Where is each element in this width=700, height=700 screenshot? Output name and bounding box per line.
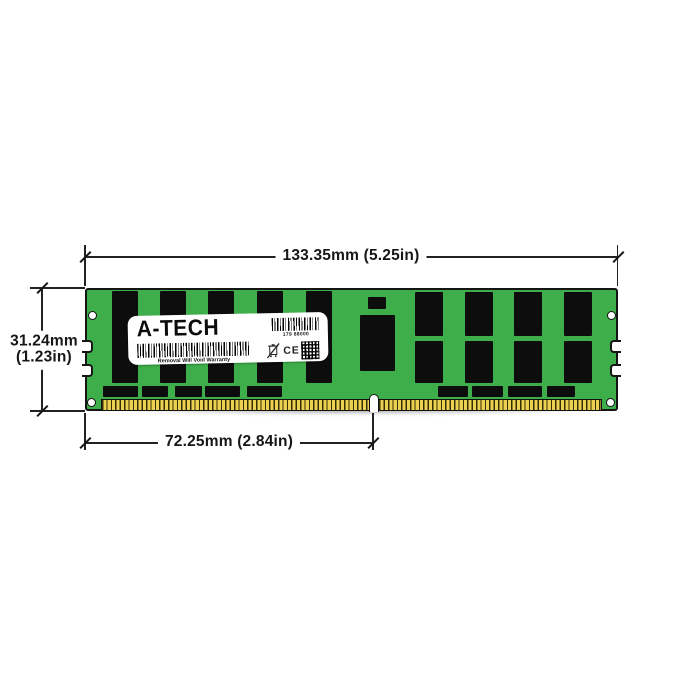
ce-mark: CE <box>283 344 300 356</box>
serial-number: 179 88000 <box>272 331 320 338</box>
barcode-icon <box>272 317 320 331</box>
small-chip <box>142 386 168 397</box>
small-chip <box>103 386 138 397</box>
small-chip <box>247 386 282 397</box>
small-chip <box>472 386 503 397</box>
extension-line <box>617 245 619 286</box>
edge-notch <box>82 364 93 377</box>
product-label: A-TECH 179 88000 Removal Will Void Warra… <box>128 312 329 365</box>
pin-key-notch <box>369 394 379 412</box>
edge-notch <box>610 340 621 353</box>
dimension-height-in: (1.23in) <box>10 350 78 366</box>
edge-notch <box>82 340 93 353</box>
small-chip <box>438 386 468 397</box>
memory-chip <box>514 341 542 383</box>
spd-chip <box>368 297 386 309</box>
gold-pin-contacts <box>101 399 602 411</box>
memory-chip <box>415 341 443 383</box>
edge-notch <box>610 364 621 377</box>
small-chip <box>175 386 202 397</box>
dimension-width-label: 133.35mm (5.25in) <box>276 248 427 264</box>
mounting-hole <box>88 311 97 320</box>
memory-chip <box>465 341 493 383</box>
small-chip <box>547 386 575 397</box>
memory-chip <box>514 292 542 336</box>
memory-chip <box>465 292 493 336</box>
small-chip <box>205 386 240 397</box>
brand-logo: A-TECH <box>137 315 220 343</box>
mounting-hole <box>607 311 616 320</box>
memory-chip <box>564 292 592 336</box>
ram-module: A-TECH 179 88000 Removal Will Void Warra… <box>85 288 618 411</box>
dimension-height-label: 31.24mm (1.23in) <box>8 331 80 370</box>
weee-crossed-bin-icon <box>266 342 280 364</box>
mounting-hole <box>606 398 615 407</box>
memory-chip <box>415 292 443 336</box>
small-chip <box>508 386 542 397</box>
extension-line <box>30 287 85 289</box>
register-chip <box>360 315 395 371</box>
extension-line <box>84 245 86 286</box>
memory-chip <box>564 341 592 383</box>
extension-line <box>30 410 85 412</box>
dimension-height-mm: 31.24mm <box>10 334 78 350</box>
mounting-hole <box>87 398 96 407</box>
dimension-pin-width-label: 72.25mm (2.84in) <box>158 434 300 450</box>
qr-code-icon <box>301 341 319 359</box>
